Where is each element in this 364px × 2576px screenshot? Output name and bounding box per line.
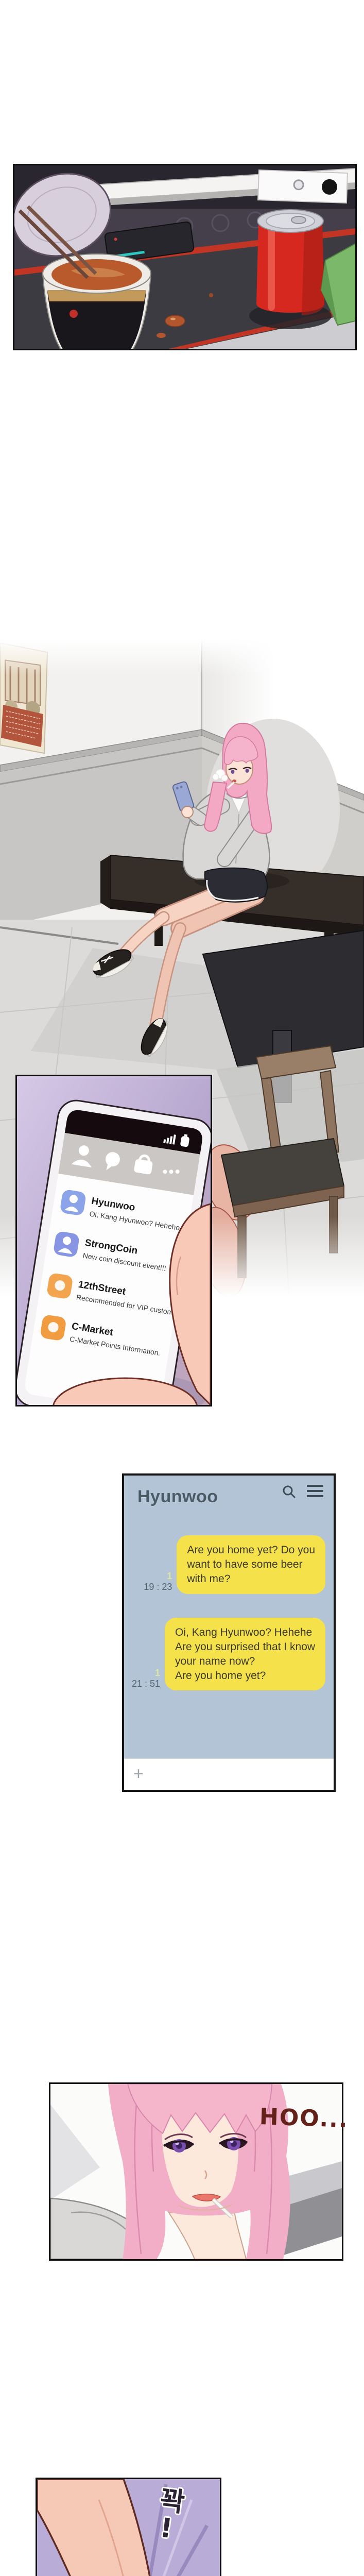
chat-title: Hyunwoo (137, 1487, 218, 1507)
message-meta: 1 21 : 51 (132, 1668, 160, 1690)
message-meta: 1 19 : 23 (144, 1571, 172, 1594)
phone-art: Hyunwoo Oi, Kang Hyunwoo? Hehehe StrongC… (17, 1076, 211, 1405)
menu-icon[interactable] (307, 1485, 323, 1498)
read-count: 1 (155, 1668, 160, 1679)
panel-grip (36, 2478, 221, 2576)
panel-phone-notifications: Hyunwoo Oi, Kang Hyunwoo? Hehehe StrongC… (15, 1075, 212, 1406)
sfx-hoo: HOO... (259, 2104, 349, 2133)
chat-bubble-outgoing: Oi, Kang Hyunwoo? Hehehe Are you surpris… (165, 1618, 325, 1691)
soda-can (249, 210, 332, 329)
read-count: 1 (167, 1571, 172, 1582)
wall-control-panel (258, 170, 348, 203)
message-row: 1 21 : 51 Oi, Kang Hyunwoo? Hehehe Are y… (124, 1618, 325, 1691)
chat-bubble-outgoing: Are you home yet? Do you want to have so… (177, 1535, 325, 1594)
grip-art (37, 2479, 220, 2576)
webtoon-page: Hyunwoo Oi, Kang Hyunwoo? Hehehe StrongC… (0, 0, 364, 2576)
sfx-grip: 꽉! (151, 2485, 184, 2546)
chat-header: Hyunwoo (124, 1476, 334, 1514)
table-scene-art (14, 165, 355, 349)
message-time: 19 : 23 (144, 1582, 172, 1593)
message-row: 1 19 : 23 Are you home yet? Do you want … (124, 1535, 325, 1594)
attach-plus-button[interactable]: + (133, 1764, 144, 1784)
search-icon[interactable] (281, 1484, 297, 1499)
hand (182, 806, 193, 818)
message-input-bar[interactable]: + (124, 1758, 334, 1790)
message-time: 21 : 51 (132, 1679, 160, 1690)
panel-table-scene (13, 164, 357, 350)
panel-chat: Hyunwoo 1 19 : 23 Are you home yet? Do y… (122, 1473, 336, 1792)
